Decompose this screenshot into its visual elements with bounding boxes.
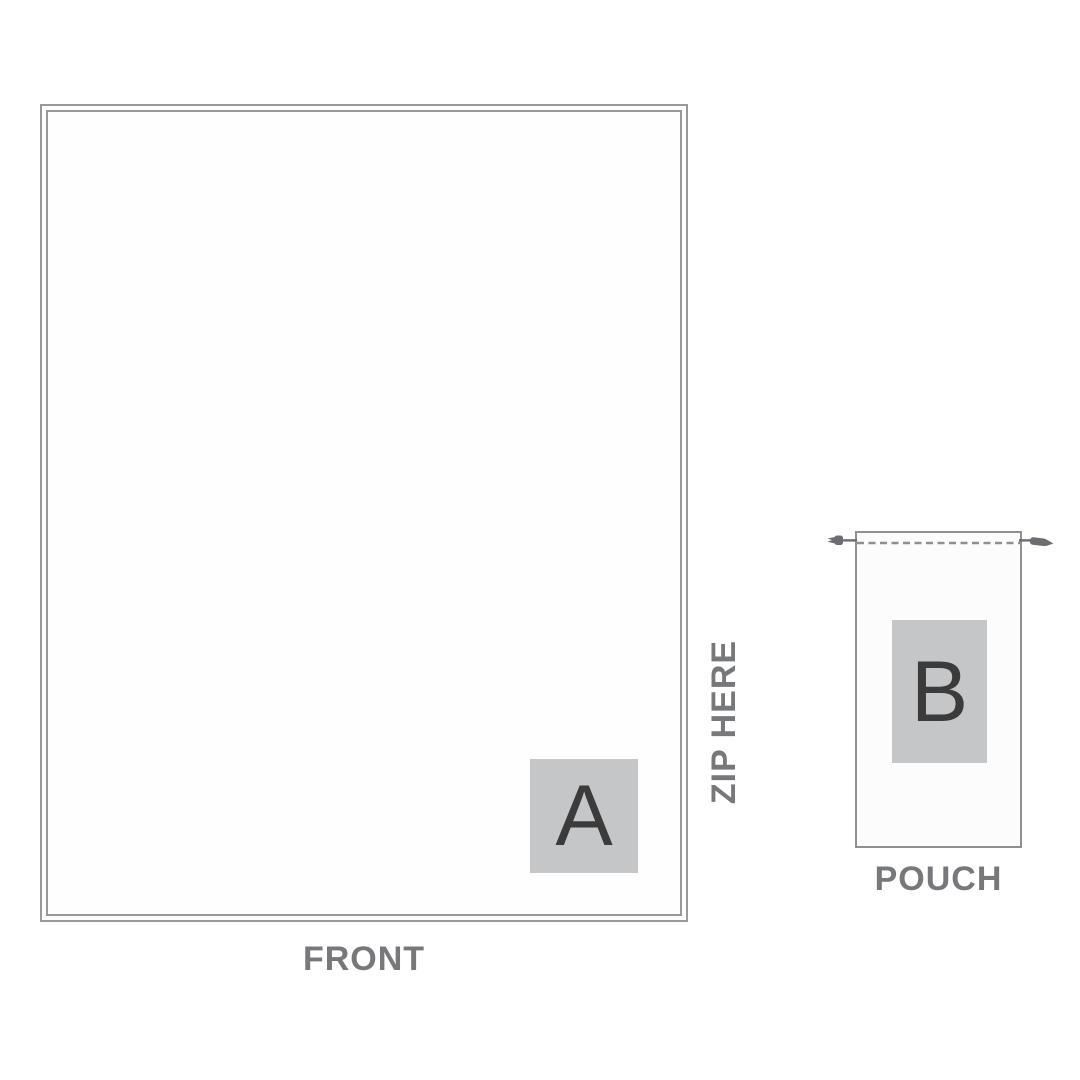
- marker-a-letter: A: [555, 773, 612, 859]
- drawstring-left-toggle-icon: [828, 536, 858, 546]
- marker-b-letter: B: [911, 649, 968, 735]
- pouch-label: POUCH: [855, 862, 1022, 896]
- print-area-marker-a: A: [530, 759, 638, 873]
- zip-here-label: ZIP HERE: [707, 640, 741, 804]
- drawstring-right-toggle-icon: [1019, 537, 1054, 547]
- front-label: FRONT: [40, 942, 688, 976]
- print-template-diagram: A FRONT ZIP HERE B POUCH: [0, 0, 1080, 1080]
- print-area-marker-b: B: [892, 620, 987, 763]
- drawstring-icon: [826, 525, 1054, 563]
